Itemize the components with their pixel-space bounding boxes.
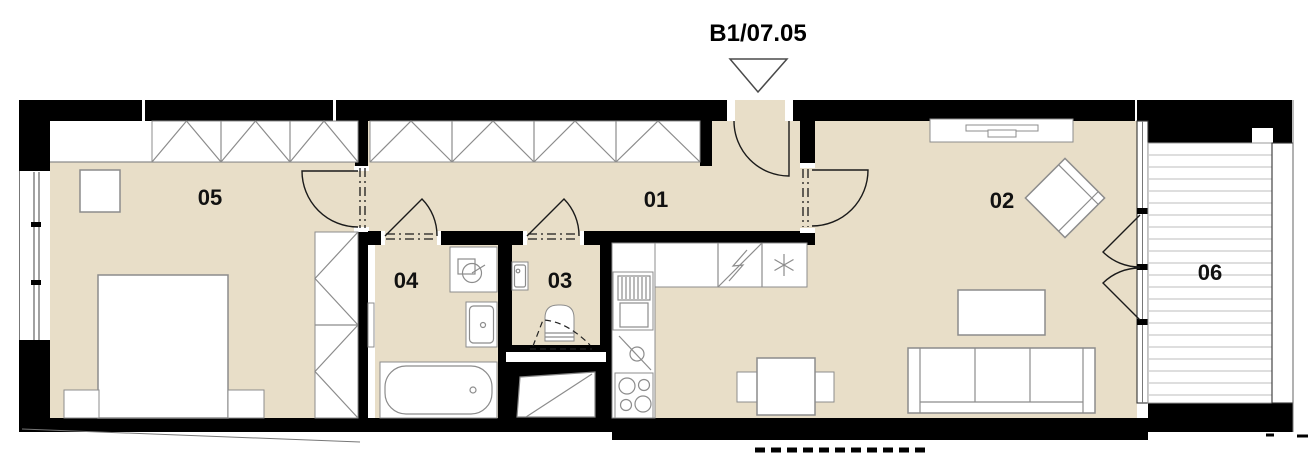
double-bed <box>98 275 228 418</box>
room-label-05: 05 <box>198 185 222 210</box>
entrance-stub-wall <box>700 121 712 166</box>
jamb <box>800 228 815 233</box>
wall-joint <box>142 100 145 121</box>
dining-table <box>757 358 815 415</box>
room-label-02: 02 <box>990 188 1014 213</box>
door-opening-05 <box>355 166 368 232</box>
nightstand <box>228 390 264 418</box>
left-wall-upper <box>19 100 50 171</box>
washbasin <box>466 302 497 347</box>
room-label-03: 03 <box>548 268 572 293</box>
wall-kitchen-left <box>600 231 612 418</box>
wardrobe-room-05-side <box>315 232 358 418</box>
side-table <box>80 170 120 212</box>
installation-shaft <box>506 352 606 417</box>
tv-base <box>988 130 1016 137</box>
unit-title: B1/07.05 <box>709 20 806 47</box>
washing-machine <box>450 247 497 292</box>
top-wall <box>19 100 1148 121</box>
wall-joint <box>333 100 336 121</box>
shaft-symbol <box>517 372 595 417</box>
room-label-06: 06 <box>1198 260 1222 285</box>
wardrobe-hallway <box>370 121 700 162</box>
window-mullion <box>31 280 41 285</box>
jamb <box>354 227 369 232</box>
entrance-marker <box>730 59 787 92</box>
entrance-jamb <box>727 100 735 121</box>
chair <box>815 372 834 402</box>
bottom-wall-left <box>19 418 612 432</box>
balcony-bottom-wall <box>1148 403 1293 432</box>
window-room-05 <box>19 171 50 340</box>
nightstand <box>64 390 99 418</box>
jamb <box>381 231 385 245</box>
oven-grill-lines <box>622 277 646 299</box>
door-jamb-mark <box>1137 319 1148 325</box>
jamb <box>523 231 527 245</box>
wall-joint <box>1135 100 1137 121</box>
door-jamb-mark <box>1137 208 1148 214</box>
sofa <box>908 348 1095 413</box>
bottom-wall-right <box>612 418 1148 440</box>
oven-stack <box>613 272 653 330</box>
door-opening-04 <box>385 231 437 245</box>
room-label-01: 01 <box>644 187 668 212</box>
jamb <box>580 231 584 245</box>
entrance-opening <box>735 100 785 121</box>
window-mullion <box>31 222 41 227</box>
door-opening-03 <box>527 231 580 245</box>
coffee-table <box>958 290 1045 335</box>
wall-01-02 <box>800 100 815 163</box>
entrance-marker-icon <box>730 59 787 92</box>
jamb <box>354 166 369 171</box>
floor-plan: B1/07.05 05 01 04 03 02 06 <box>0 0 1313 458</box>
bathtub <box>380 362 497 418</box>
chair <box>737 372 757 402</box>
cooktop-icon <box>615 373 653 418</box>
room-label-04: 04 <box>394 268 419 293</box>
hall-wall <box>437 231 527 245</box>
entrance-jamb <box>785 100 793 121</box>
duct-strip <box>506 352 606 362</box>
jamb <box>800 163 815 168</box>
wall-notch <box>1252 128 1273 143</box>
balcony-railing <box>1272 143 1293 403</box>
wall-mirror <box>368 303 374 347</box>
